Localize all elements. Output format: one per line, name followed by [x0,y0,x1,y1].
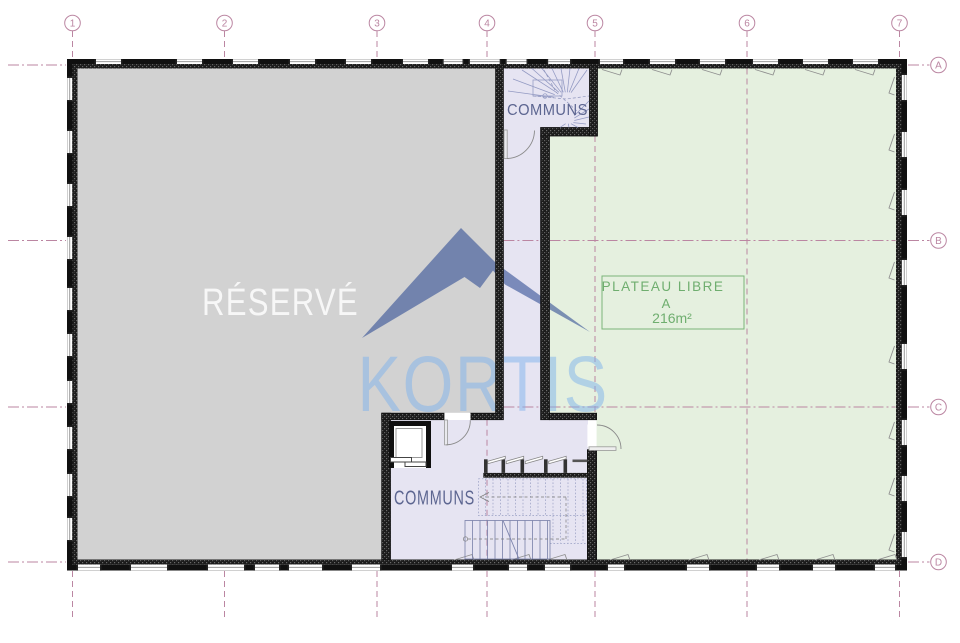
svg-text:A: A [662,296,671,311]
svg-text:7: 7 [897,19,903,30]
svg-text:2: 2 [222,19,228,30]
svg-text:RÉSERVÉ: RÉSERVÉ [202,281,359,324]
svg-text:B: B [935,236,942,247]
svg-text:A: A [935,61,942,72]
svg-text:5: 5 [592,19,598,30]
svg-text:COMMUNS: COMMUNS [394,486,475,509]
svg-text:D: D [935,558,942,569]
svg-text:3: 3 [374,19,380,30]
svg-text:216m²: 216m² [652,310,692,326]
svg-text:PLATEAU LIBRE: PLATEAU LIBRE [602,279,725,294]
svg-text:COMMUNS: COMMUNS [507,101,588,119]
svg-text:C: C [935,403,942,414]
svg-text:6: 6 [744,19,750,30]
svg-text:1: 1 [70,19,76,30]
svg-text:4: 4 [484,19,490,30]
